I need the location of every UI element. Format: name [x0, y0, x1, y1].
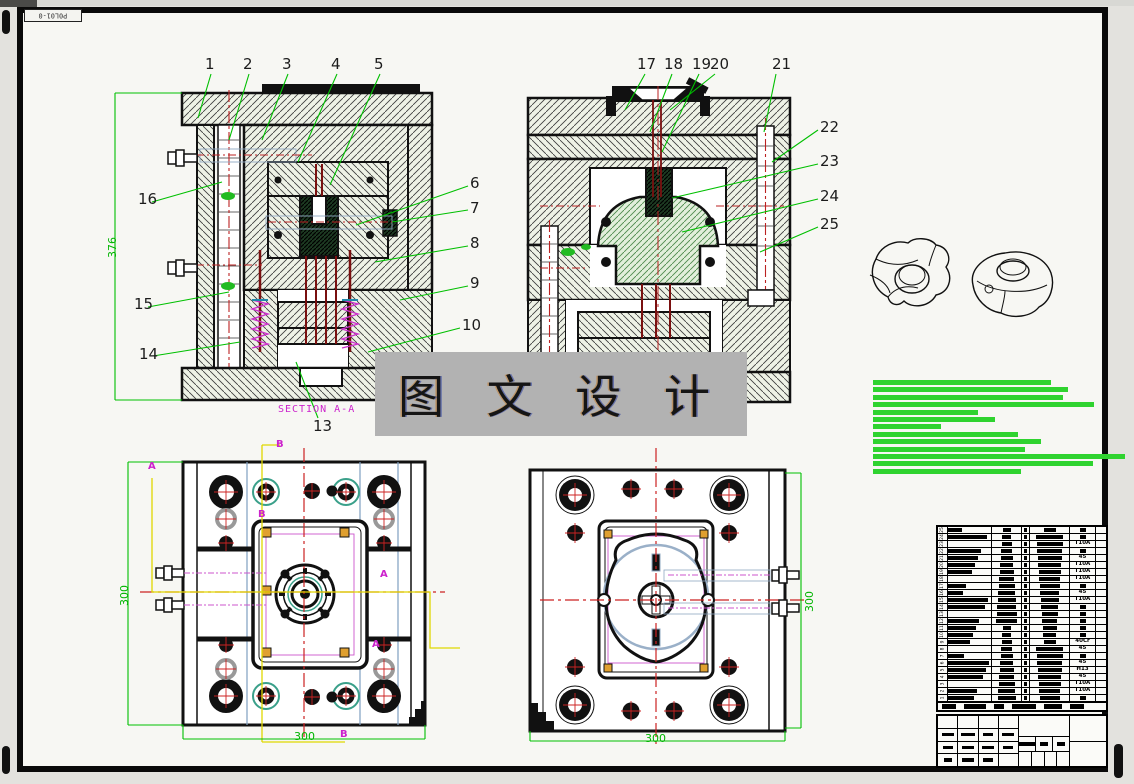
- callout-13: 13: [313, 419, 332, 434]
- bom-cell: [1021, 667, 1029, 673]
- callout-6: 6: [470, 176, 480, 191]
- bom-cell: [947, 674, 991, 680]
- bom-cell: [1021, 611, 1029, 617]
- bom-cell: [1095, 646, 1106, 652]
- bom-cell: H13: [1069, 667, 1095, 673]
- bom-cell: [947, 618, 991, 624]
- bom-cell: [991, 681, 1021, 687]
- bom-cell: [991, 569, 1021, 575]
- bom-cell: [1095, 562, 1106, 568]
- redacted-note-line: [873, 380, 1051, 385]
- bom-cell: [1069, 632, 1095, 638]
- bom-cell: [947, 604, 991, 610]
- callout-18: 18: [664, 57, 683, 72]
- dim-plan-right-height: 300: [804, 591, 815, 612]
- bom-cell: [1029, 562, 1069, 568]
- bom-cell: [947, 562, 991, 568]
- bom-cell: [1029, 660, 1069, 666]
- bom-cell: [947, 534, 991, 540]
- bom-cell: [1021, 555, 1029, 561]
- bom-cell: [1021, 569, 1029, 575]
- bom-cell: [1095, 604, 1106, 610]
- bom-cell: [1095, 618, 1106, 624]
- bom-cell: [991, 534, 1021, 540]
- redacted-note-line: [873, 387, 1068, 392]
- bom-row: 12: [938, 618, 1106, 625]
- bom-cell: [991, 695, 1021, 701]
- bom-header-redacted: [942, 704, 956, 709]
- part-isometric-views: [870, 239, 1053, 317]
- bom-cell: 11: [938, 625, 947, 631]
- bom-cell: 14: [938, 604, 947, 610]
- bom-row: 13: [938, 611, 1106, 618]
- bom-cell: [991, 597, 1021, 603]
- bom-cell: 4: [938, 674, 947, 680]
- title-cell: [1032, 752, 1045, 766]
- bom-table: 252423T10A22214520T10A19T10A18T10A171645…: [936, 525, 1108, 712]
- bom-cell: 10: [938, 632, 947, 638]
- bom-row: 1: [938, 695, 1106, 702]
- title-cell: [958, 729, 978, 741]
- bom-cell: [1021, 562, 1029, 568]
- callout-5: 5: [374, 57, 384, 72]
- bom-cell: [1029, 632, 1069, 638]
- bom-cell: [1095, 632, 1106, 638]
- bom-cell: [1029, 527, 1069, 533]
- bom-cell: [1029, 653, 1069, 659]
- redacted-note-line: [873, 417, 995, 422]
- bom-cell: 8: [938, 646, 947, 652]
- title-block-right: [1070, 716, 1106, 766]
- bom-header-redacted: [964, 704, 986, 709]
- bom-row: 11: [938, 625, 1106, 632]
- bom-cell: [1095, 597, 1106, 603]
- bom-row: 2T10A: [938, 688, 1106, 695]
- bom-cell: [1029, 534, 1069, 540]
- redacted-note-line: [873, 424, 941, 429]
- bom-cell: [1021, 548, 1029, 554]
- bom-cell: [1021, 541, 1029, 547]
- section-letter-b-bottom: B: [340, 730, 348, 740]
- bom-rows: 252423T10A22214520T10A19T10A18T10A171645…: [938, 527, 1106, 702]
- bom-cell: T10A: [1069, 597, 1095, 603]
- bom-cell: [991, 674, 1021, 680]
- bom-cell: [947, 597, 991, 603]
- bom-cell: [1069, 604, 1095, 610]
- callout-3: 3: [282, 57, 292, 72]
- bom-cell: [1021, 695, 1029, 701]
- bom-cell: [991, 653, 1021, 659]
- drawing-sheet: P0L01-0: [0, 0, 1134, 784]
- bom-cell: [1021, 576, 1029, 582]
- redacted-notes-block: [873, 380, 1133, 476]
- title-block-middle: [1019, 716, 1070, 766]
- bom-cell: [991, 590, 1021, 596]
- bom-cell: [1029, 639, 1069, 645]
- bom-cell: [1069, 534, 1095, 540]
- bom-cell: 20: [938, 562, 947, 568]
- bom-cell: [1021, 639, 1029, 645]
- bom-cell: [1029, 555, 1069, 561]
- bom-row: 23T10A: [938, 541, 1106, 548]
- bom-cell: [1029, 576, 1069, 582]
- bom-cell: [1095, 695, 1106, 701]
- bom-cell: T10A: [1069, 569, 1095, 575]
- bom-cell: [1095, 611, 1106, 617]
- bom-header-redacted: [1044, 704, 1062, 709]
- bom-cell: [1021, 583, 1029, 589]
- bom-cell: [1021, 625, 1029, 631]
- bom-cell: [1029, 625, 1069, 631]
- bom-cell: [991, 583, 1021, 589]
- title-cell: [1045, 752, 1058, 766]
- bom-cell: 45: [1069, 674, 1095, 680]
- bom-cell: [947, 527, 991, 533]
- bom-cell: [947, 555, 991, 561]
- bom-cell: T10A: [1069, 576, 1095, 582]
- dim-plan-left-height: 300: [119, 585, 130, 606]
- bom-cell: 45: [1069, 555, 1095, 561]
- bom-cell: [1021, 688, 1029, 694]
- title-cell: [938, 754, 958, 766]
- callout-7: 7: [470, 201, 480, 216]
- redacted-note-line: [873, 469, 1021, 474]
- bom-cell: 7: [938, 653, 947, 659]
- bom-cell: [1095, 688, 1106, 694]
- bom-row: 845: [938, 646, 1106, 653]
- bom-cell: [1029, 688, 1069, 694]
- callout-20: 20: [710, 57, 729, 72]
- redacted-note-line: [873, 402, 1094, 407]
- callout-22: 22: [820, 120, 839, 135]
- bom-row: 15T10A: [938, 597, 1106, 604]
- bom-cell: [991, 604, 1021, 610]
- bom-cell: [1021, 681, 1029, 687]
- bom-cell: [947, 681, 991, 687]
- bom-cell: [1095, 541, 1106, 547]
- title-cell: [1019, 737, 1036, 751]
- bom-cell: [947, 695, 991, 701]
- bom-cell: [991, 611, 1021, 617]
- title-cell: [1036, 737, 1053, 751]
- title-cell: [999, 729, 1018, 741]
- bom-cell: [947, 667, 991, 673]
- bom-cell: 5: [938, 667, 947, 673]
- section-letter-a-right: A: [380, 570, 388, 580]
- bom-cell: [1095, 667, 1106, 673]
- bom-cell: [1021, 674, 1029, 680]
- bom-row: 14: [938, 604, 1106, 611]
- bom-cell: [1029, 695, 1069, 701]
- bom-cell: 24: [938, 534, 947, 540]
- bom-cell: [991, 562, 1021, 568]
- right-plan-view: [530, 448, 808, 744]
- title-cell: [1070, 742, 1106, 767]
- title-cell: [938, 729, 958, 741]
- bom-cell: [1021, 660, 1029, 666]
- drawing-title-area: [1019, 716, 1069, 737]
- bom-cell: [1069, 625, 1095, 631]
- bom-cell: [1029, 590, 1069, 596]
- bom-cell: [1029, 667, 1069, 673]
- bom-cell: [991, 667, 1021, 673]
- bom-cell: [1069, 527, 1095, 533]
- bom-cell: 23: [938, 541, 947, 547]
- bom-cell: 40Cr: [1069, 639, 1095, 645]
- bom-cell: 15: [938, 597, 947, 603]
- callout-4: 4: [331, 57, 341, 72]
- bom-cell: [1069, 583, 1095, 589]
- bom-cell: 1: [938, 695, 947, 701]
- bom-cell: [1021, 646, 1029, 652]
- bom-cell: [1021, 632, 1029, 638]
- bom-header-redacted: [1012, 704, 1036, 709]
- bom-cell: [1021, 653, 1029, 659]
- bom-cell: T10A: [1069, 681, 1095, 687]
- title-cell: [979, 729, 999, 741]
- title-cell: [938, 742, 958, 754]
- bom-cell: [991, 646, 1021, 652]
- title-cell: [1057, 752, 1069, 766]
- bom-cell: 12: [938, 618, 947, 624]
- bom-cell: [1029, 583, 1069, 589]
- title-cell: [958, 742, 978, 754]
- bom-cell: [1021, 527, 1029, 533]
- title-block-grid: [938, 716, 1019, 766]
- bom-cell: [947, 639, 991, 645]
- bom-cell: [1021, 597, 1029, 603]
- bom-cell: [1029, 674, 1069, 680]
- bom-cell: 6: [938, 660, 947, 666]
- bom-cell: [1069, 548, 1095, 554]
- redacted-note-line: [873, 410, 978, 415]
- bom-cell: [1095, 576, 1106, 582]
- bom-cell: [947, 583, 991, 589]
- section-label: SECTION A-A: [278, 404, 355, 415]
- title-cell: [958, 716, 978, 728]
- bom-cell: [1095, 569, 1106, 575]
- bom-header-redacted: [1070, 704, 1084, 709]
- bom-cell: 9: [938, 639, 947, 645]
- bom-cell: [947, 541, 991, 547]
- bom-cell: 13: [938, 611, 947, 617]
- title-cell: [1053, 737, 1069, 751]
- bom-cell: [991, 555, 1021, 561]
- bom-cell: [991, 576, 1021, 582]
- bom-cell: T10A: [1069, 688, 1095, 694]
- dim-plan-left-width: 300: [294, 731, 315, 742]
- bom-cell: [1095, 625, 1106, 631]
- callout-10: 10: [462, 318, 481, 333]
- title-cell: [958, 754, 978, 766]
- watermark-text: 图 文 设 计: [398, 361, 724, 427]
- bom-cell: [991, 632, 1021, 638]
- redacted-note-line: [873, 439, 1041, 444]
- title-cell: [1070, 716, 1106, 742]
- bom-cell: [1095, 660, 1106, 666]
- bom-cell: [1095, 534, 1106, 540]
- bom-cell: [1069, 618, 1095, 624]
- dim-plan-right-width: 300: [645, 733, 666, 744]
- bom-cell: [991, 541, 1021, 547]
- callout-21: 21: [772, 57, 791, 72]
- title-cell: [938, 716, 958, 728]
- bom-cell: [947, 688, 991, 694]
- bom-cell: [991, 688, 1021, 694]
- section-letter-b-mid: B: [258, 510, 266, 520]
- bom-cell: [1029, 646, 1069, 652]
- bom-cell: [1095, 548, 1106, 554]
- section-letter-a-left: A: [148, 462, 156, 472]
- callout-23: 23: [820, 154, 839, 169]
- bom-cell: [1095, 681, 1106, 687]
- bom-cell: [947, 548, 991, 554]
- callout-17: 17: [637, 57, 656, 72]
- bom-cell: [991, 660, 1021, 666]
- bom-cell: [947, 632, 991, 638]
- bom-cell: 17: [938, 583, 947, 589]
- bom-cell: T10A: [1069, 541, 1095, 547]
- bom-cell: 45: [1069, 646, 1095, 652]
- dim-section-height: 376: [107, 237, 118, 258]
- bom-cell: [1095, 590, 1106, 596]
- title-cell: [999, 754, 1018, 766]
- redacted-note-line: [873, 395, 1063, 400]
- bom-cell: [1095, 653, 1106, 659]
- bom-cell: [947, 625, 991, 631]
- bom-cell: [991, 618, 1021, 624]
- section-letter-b-top: B: [276, 440, 284, 450]
- bom-row: 18T10A: [938, 576, 1106, 583]
- bom-cell: [1029, 569, 1069, 575]
- bom-cell: [1095, 527, 1106, 533]
- bom-cell: [947, 590, 991, 596]
- bom-cell: [947, 660, 991, 666]
- bom-cell: [1029, 611, 1069, 617]
- section-letter-a-lower: A: [372, 640, 380, 650]
- bom-cell: 45: [1069, 590, 1095, 596]
- bom-cell: [1069, 695, 1095, 701]
- bom-row: 25: [938, 527, 1106, 534]
- bom-cell: 18: [938, 576, 947, 582]
- bom-cell: [991, 625, 1021, 631]
- bom-cell: [947, 576, 991, 582]
- bom-cell: [1069, 611, 1095, 617]
- bom-cell: [947, 653, 991, 659]
- bom-cell: [1021, 604, 1029, 610]
- bom-cell: [991, 527, 1021, 533]
- callout-1: 1: [205, 57, 215, 72]
- title-cell: [999, 742, 1018, 754]
- bom-cell: T10A: [1069, 562, 1095, 568]
- bom-header-redacted: [994, 704, 1004, 709]
- bom-cell: [1021, 618, 1029, 624]
- redacted-note-line: [873, 447, 1025, 452]
- bom-cell: 22: [938, 548, 947, 554]
- bom-cell: [1029, 681, 1069, 687]
- watermark-band: 图 文 设 计: [375, 352, 747, 436]
- bom-cell: [1021, 590, 1029, 596]
- title-block: [936, 714, 1108, 768]
- bom-cell: [1029, 541, 1069, 547]
- bom-cell: [1095, 674, 1106, 680]
- redacted-note-line: [873, 461, 1093, 466]
- bom-cell: 19: [938, 569, 947, 575]
- bom-cell: [1029, 618, 1069, 624]
- callout-16: 16: [138, 192, 157, 207]
- bom-cell: [991, 639, 1021, 645]
- title-cell: [999, 716, 1018, 728]
- bom-cell: [1095, 639, 1106, 645]
- redacted-note-line: [873, 454, 1125, 459]
- callout-2: 2: [243, 57, 253, 72]
- bom-cell: 45: [1069, 660, 1095, 666]
- callout-14: 14: [139, 347, 158, 362]
- bom-cell: 3: [938, 681, 947, 687]
- redacted-note-line: [873, 432, 1018, 437]
- callout-15: 15: [134, 297, 153, 312]
- bom-cell: [947, 569, 991, 575]
- bom-cell: [1029, 597, 1069, 603]
- bom-cell: [1029, 604, 1069, 610]
- callout-24: 24: [820, 189, 839, 204]
- bom-cell: 25: [938, 527, 947, 533]
- bom-header-row: [938, 702, 1106, 710]
- bom-cell: [1021, 534, 1029, 540]
- title-cell: [1019, 752, 1032, 766]
- bom-cell: [1095, 555, 1106, 561]
- callout-19: 19: [692, 57, 711, 72]
- bom-cell: [1069, 653, 1095, 659]
- callout-25: 25: [820, 217, 839, 232]
- bom-cell: [947, 611, 991, 617]
- title-cell: [979, 716, 999, 728]
- bom-cell: [991, 548, 1021, 554]
- bom-cell: [947, 646, 991, 652]
- callout-8: 8: [470, 236, 480, 251]
- title-cell: [979, 742, 999, 754]
- callout-9: 9: [470, 276, 480, 291]
- bom-cell: [1029, 548, 1069, 554]
- left-plan-view: [140, 445, 460, 742]
- bom-cell: 21: [938, 555, 947, 561]
- bom-cell: 16: [938, 590, 947, 596]
- bom-cell: 2: [938, 688, 947, 694]
- bom-cell: [1095, 583, 1106, 589]
- title-cell: [979, 754, 999, 766]
